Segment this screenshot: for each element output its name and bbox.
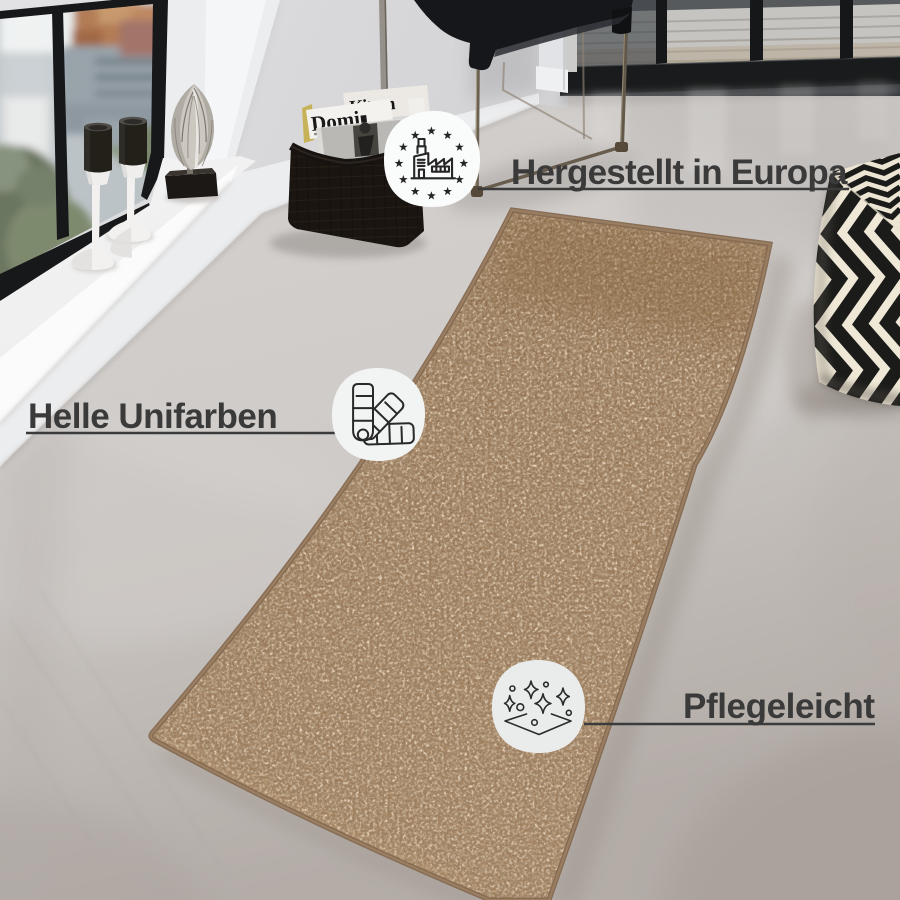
svg-text:Helle Unifarben: Helle Unifarben bbox=[28, 397, 277, 436]
svg-text:Pflegeleicht: Pflegeleicht bbox=[683, 687, 875, 726]
svg-text:Hergestellt in Europa: Hergestellt in Europa bbox=[511, 153, 848, 192]
